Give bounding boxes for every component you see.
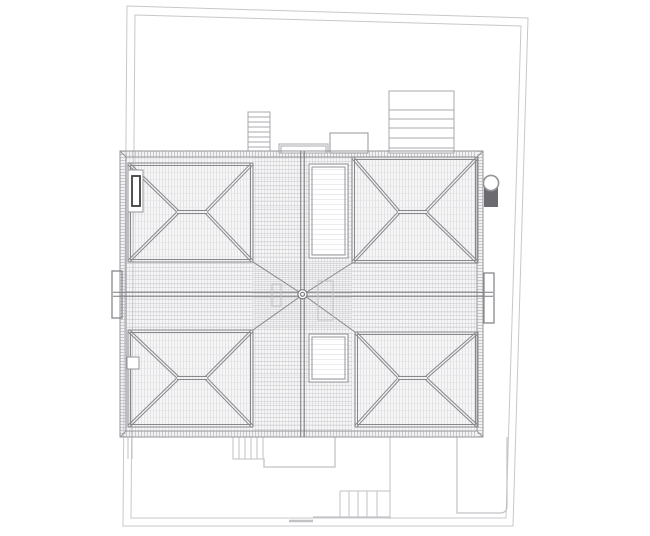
hip-tr-diag-sw-b <box>352 212 398 261</box>
hip-tr-diag-se-a <box>427 212 478 261</box>
hip-tl-outer <box>128 163 253 262</box>
hip-tr-diag-nw-b <box>354 157 400 210</box>
hip-tl-inner <box>131 166 251 260</box>
hip-tr-diag-ne-a <box>426 157 477 210</box>
dormer-high <box>330 133 368 153</box>
stairs-top-large <box>389 91 454 153</box>
ridge-hub-inner <box>301 292 305 296</box>
hip-bl-diag-ne-b <box>207 332 253 378</box>
hip-tl-diag-se-a <box>207 212 253 260</box>
property-boundary-inner <box>131 15 521 518</box>
valley-tr <box>303 263 352 295</box>
hip-tl-diag-ne-a <box>206 163 252 210</box>
hip-tl-diag-ne-b <box>207 165 253 212</box>
valley-br <box>303 295 355 333</box>
hip-br-diag-sw-b <box>355 378 398 425</box>
hip-br-diag-sw-a <box>357 380 400 427</box>
hip-br-diag-ne-b <box>427 334 478 378</box>
hip-tl-diag-sw-a <box>130 214 179 262</box>
valley-tl <box>253 262 303 295</box>
hip-bl-outer <box>128 330 253 427</box>
skylight-top-inner <box>312 167 345 255</box>
eave-corner-miter-tr <box>477 151 483 157</box>
hip-bl-diag-se-a <box>207 378 253 425</box>
hip-br-diag-nw-b <box>357 332 400 376</box>
valley-bl <box>253 295 303 331</box>
plan-linework <box>0 0 650 536</box>
skylight-top-outer <box>309 164 348 258</box>
hip-tl-diag-sw-b <box>128 212 177 260</box>
eave-corner-miter-tl <box>120 151 126 157</box>
hip-bl-diag-sw-b <box>128 378 177 425</box>
chimney-left-inner <box>132 176 140 206</box>
hip-tr-diag-se-b <box>426 214 477 263</box>
hip-tl-diag-se-b <box>206 214 252 262</box>
roof-plan-drawing <box>0 0 650 536</box>
hip-tr-diag-sw-a <box>354 214 400 263</box>
skylight-bottom-outer <box>309 334 348 382</box>
hip-tr-diag-ne-b <box>427 159 478 212</box>
hip-br-diag-ne-a <box>426 332 477 376</box>
lower-right-structure <box>457 437 507 513</box>
hip-tr-diag-nw-a <box>352 159 398 212</box>
roof-box-bottom-left <box>127 357 139 369</box>
eave-corner-miter-br <box>477 431 483 437</box>
dormer-low-outer <box>279 144 328 153</box>
vent-right-cap <box>483 175 498 190</box>
lower-step-outline <box>263 437 335 467</box>
hip-bl-diag-se-b <box>206 380 252 427</box>
skylight-bottom-inner <box>312 337 345 379</box>
hip-br-diag-nw-a <box>355 334 398 378</box>
roof-hatch-left <box>272 284 281 306</box>
eave-corner-miter-bl <box>120 431 126 437</box>
property-boundary-outer <box>123 6 528 526</box>
stairs-lower-left-outline <box>233 437 263 459</box>
hip-bl-diag-ne-a <box>206 330 252 376</box>
bay-window-right <box>484 273 494 323</box>
hip-br-diag-se-a <box>427 378 478 425</box>
hip-bl-inner <box>131 333 251 425</box>
hip-bl-diag-nw-a <box>128 332 177 378</box>
hip-br-diag-se-b <box>426 380 477 427</box>
hip-bl-diag-sw-a <box>130 380 179 427</box>
